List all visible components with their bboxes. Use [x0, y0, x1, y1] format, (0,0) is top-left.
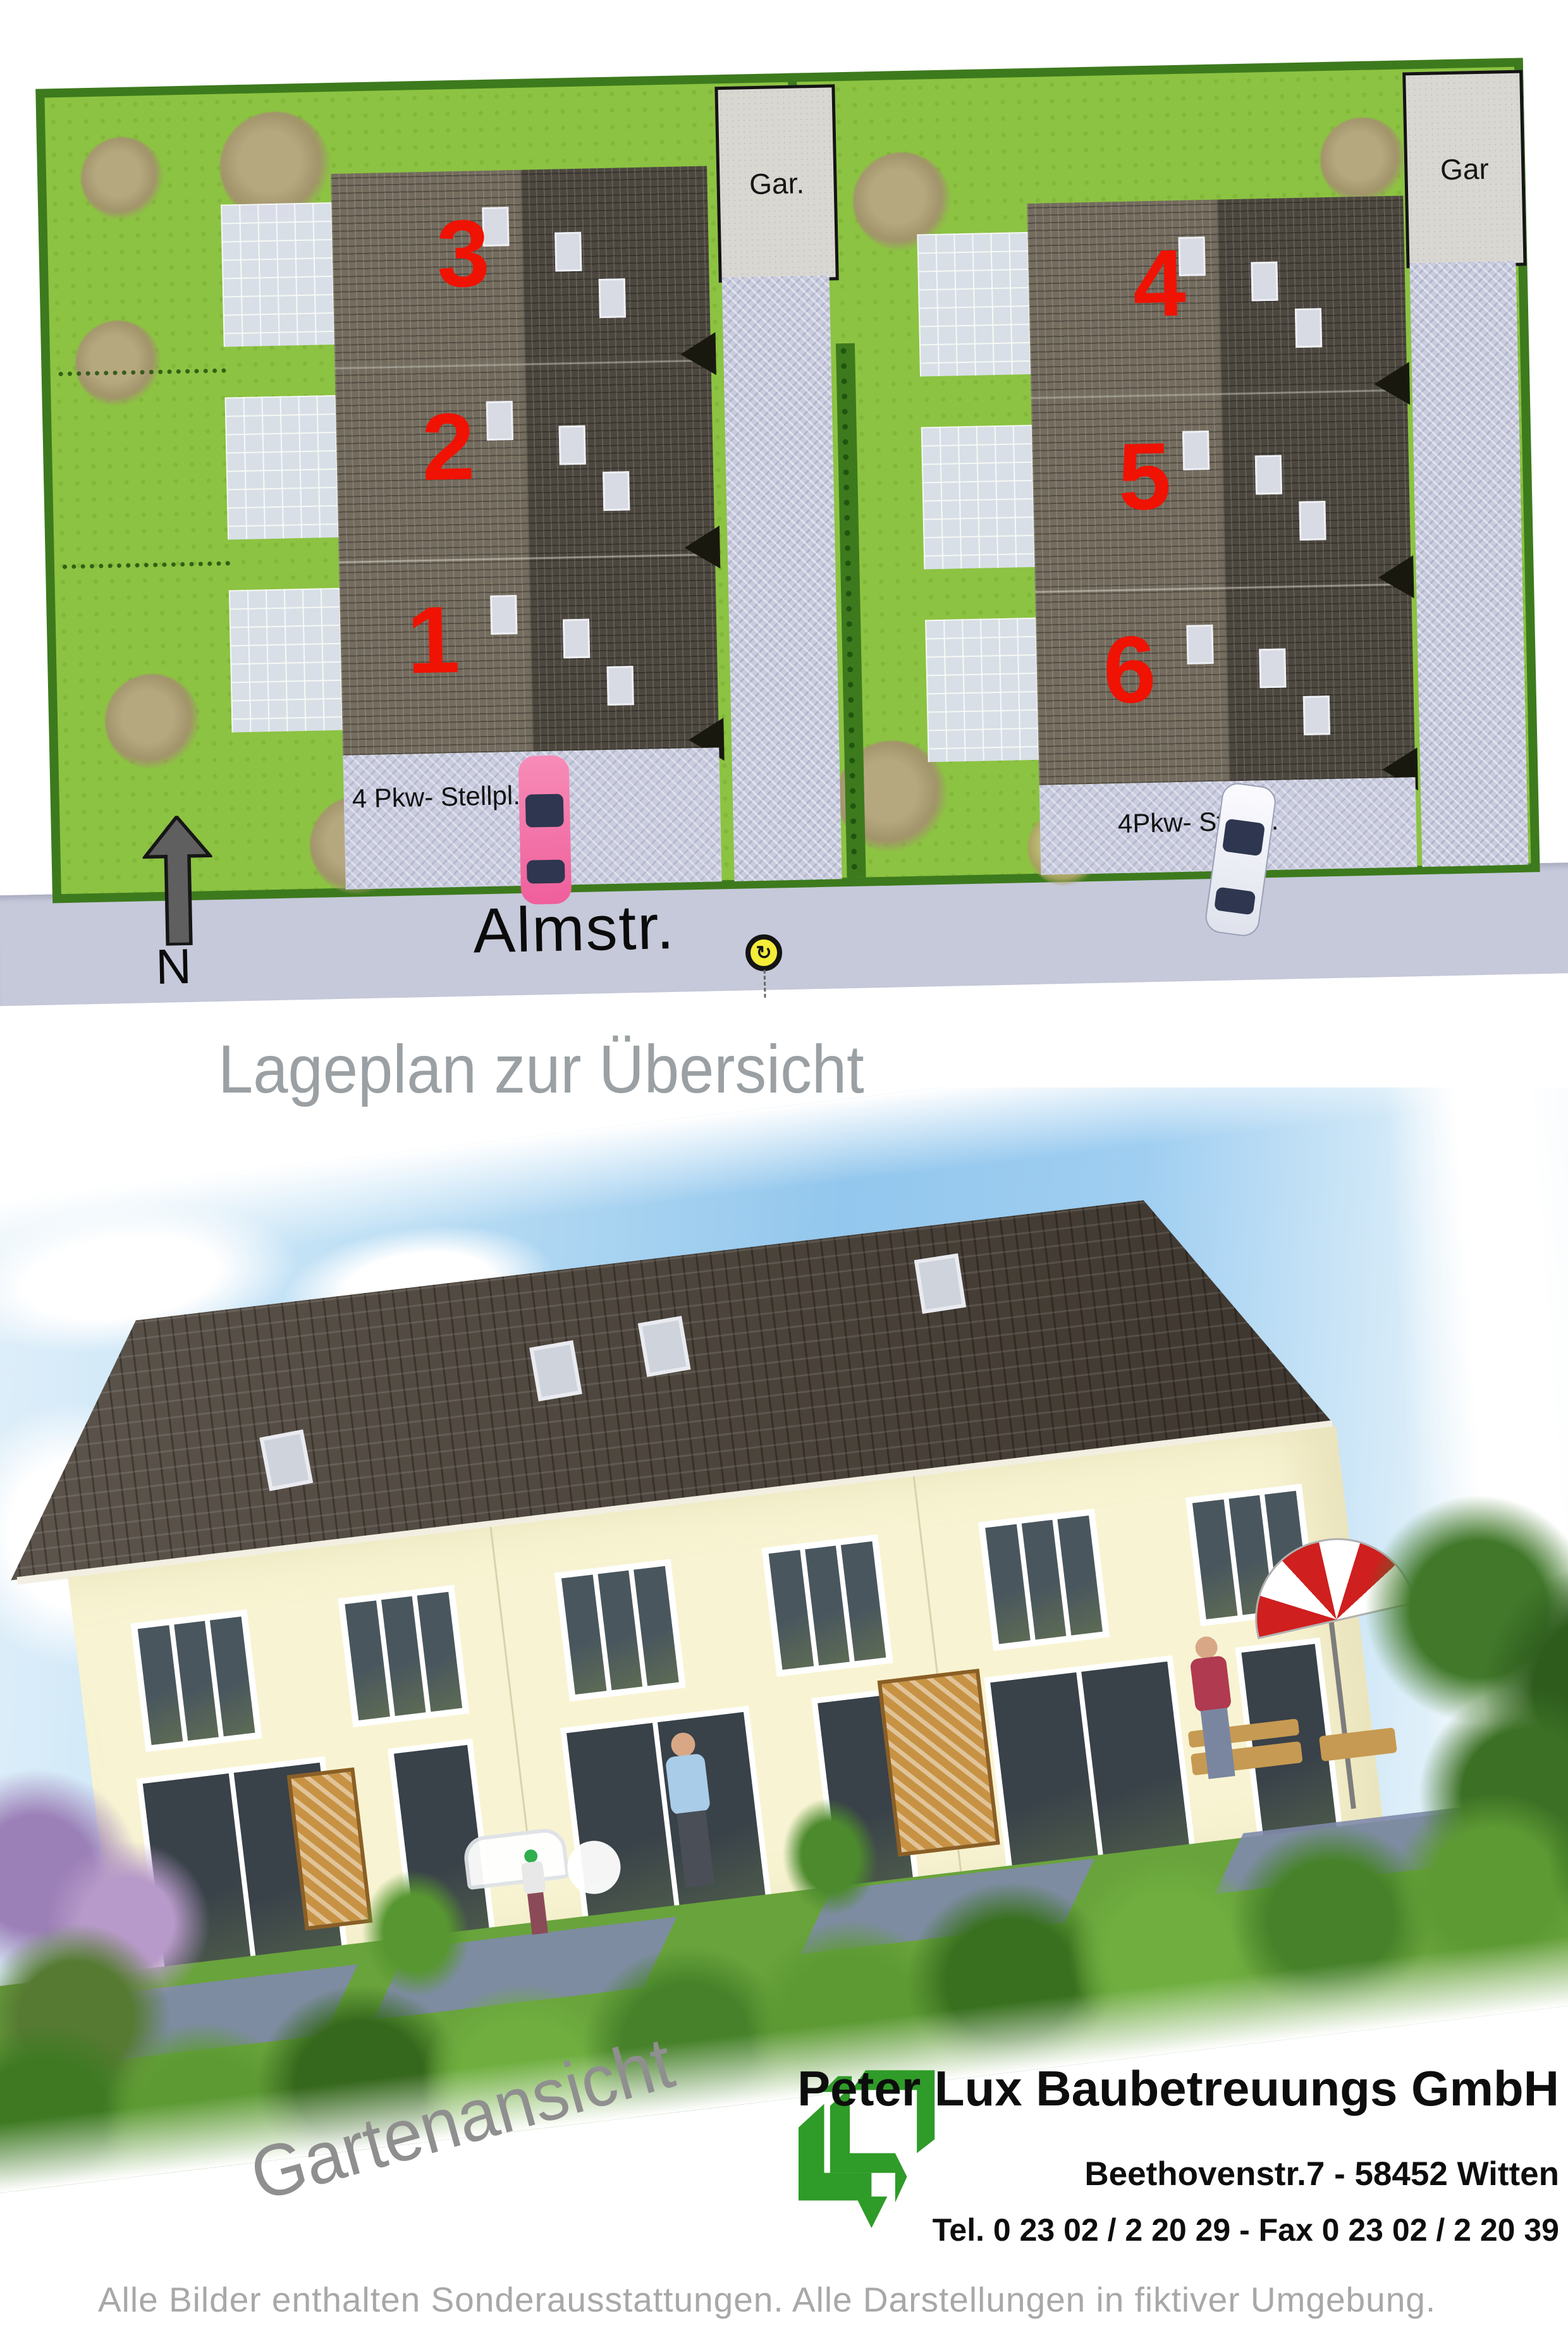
street-name-label: Almstr. — [472, 891, 676, 968]
skylight — [1295, 308, 1322, 348]
driveway-left — [722, 276, 842, 881]
parking-left-label: 4 Pkw- Stellpl. — [352, 780, 520, 814]
car-windshield — [525, 794, 564, 828]
pink-car — [518, 755, 572, 905]
skylight — [607, 666, 634, 706]
entrance-arrow-icon — [1374, 362, 1410, 405]
garage-right-label: Gar — [1440, 152, 1489, 187]
driveway-right — [1409, 261, 1528, 867]
roof-skylight — [914, 1253, 966, 1314]
roof-east-slope — [520, 166, 719, 752]
roof-skylight — [638, 1316, 691, 1377]
terrace — [925, 618, 1039, 763]
building-right-block: 4 5 6 — [1027, 195, 1415, 785]
garage-right: Gar — [1402, 70, 1526, 268]
skylight — [1255, 455, 1282, 495]
skylight — [1259, 649, 1286, 689]
garage-left-label: Gar. — [749, 166, 805, 201]
upper-window — [554, 1559, 686, 1701]
garden-rendering-wrap — [0, 1087, 1568, 2216]
disclaimer-text: Alle Bilder enthalten Sonderausstattunge… — [98, 2279, 1436, 2320]
north-arrow-icon — [142, 815, 214, 946]
company-name: Peter Lux Baubetreuungs GmbH — [797, 2060, 1559, 2117]
terrace — [229, 588, 343, 733]
upper-window — [338, 1585, 469, 1727]
terrace — [224, 395, 338, 540]
skylight — [490, 595, 517, 635]
skylight — [1182, 431, 1210, 470]
skylight — [1303, 695, 1330, 735]
unit-number-1: 1 — [406, 592, 461, 688]
entrance-arrow-icon — [680, 332, 716, 376]
upper-window — [978, 1509, 1110, 1651]
unit-number-4: 4 — [1132, 235, 1187, 331]
north-label: N — [155, 938, 192, 996]
entrance-arrow-icon — [1378, 555, 1414, 599]
car-rear-window — [1214, 886, 1256, 916]
skylight — [554, 232, 582, 272]
skylight — [1186, 625, 1213, 665]
patio-door — [984, 1655, 1196, 1877]
skylight — [599, 278, 626, 318]
garage-left: Gar. — [714, 84, 838, 283]
skylight — [603, 471, 630, 511]
upper-window — [131, 1610, 262, 1752]
skylight — [1251, 262, 1278, 302]
company-phone-fax: Tel. 0 23 02 / 2 20 29 - Fax 0 23 02 / 2… — [933, 2212, 1559, 2248]
entrance-arrow-icon — [684, 525, 720, 569]
unit-number-6: 6 — [1102, 622, 1157, 718]
patio-door — [560, 1706, 773, 1928]
skylight — [1299, 501, 1326, 541]
car-windshield — [1222, 819, 1266, 857]
skylight — [486, 401, 513, 441]
unit-number-2: 2 — [421, 398, 476, 494]
upper-window — [762, 1534, 893, 1677]
terrace — [221, 202, 334, 347]
roof-skylight — [529, 1340, 582, 1402]
car-rear-window — [527, 859, 566, 884]
wooden-trellis — [878, 1669, 1000, 1856]
terrace — [917, 232, 1031, 377]
roof-east-slope — [1216, 195, 1415, 781]
terrace — [921, 425, 1035, 570]
skylight — [563, 619, 590, 659]
company-address: Beethovenstr.7 - 58452 Witten — [1084, 2155, 1559, 2193]
unit-number-3: 3 — [436, 205, 491, 302]
brochure-page: 3 2 1 Gar. 4 Pkw- Stellpl. — [0, 0, 1568, 2352]
building-left-block: 3 2 1 — [331, 166, 719, 756]
site-plan: 3 2 1 Gar. 4 Pkw- Stellpl. — [35, 51, 1540, 1005]
garden-rendering — [0, 1087, 1568, 2193]
unit-number-5: 5 — [1117, 428, 1172, 524]
skylight — [559, 426, 586, 465]
